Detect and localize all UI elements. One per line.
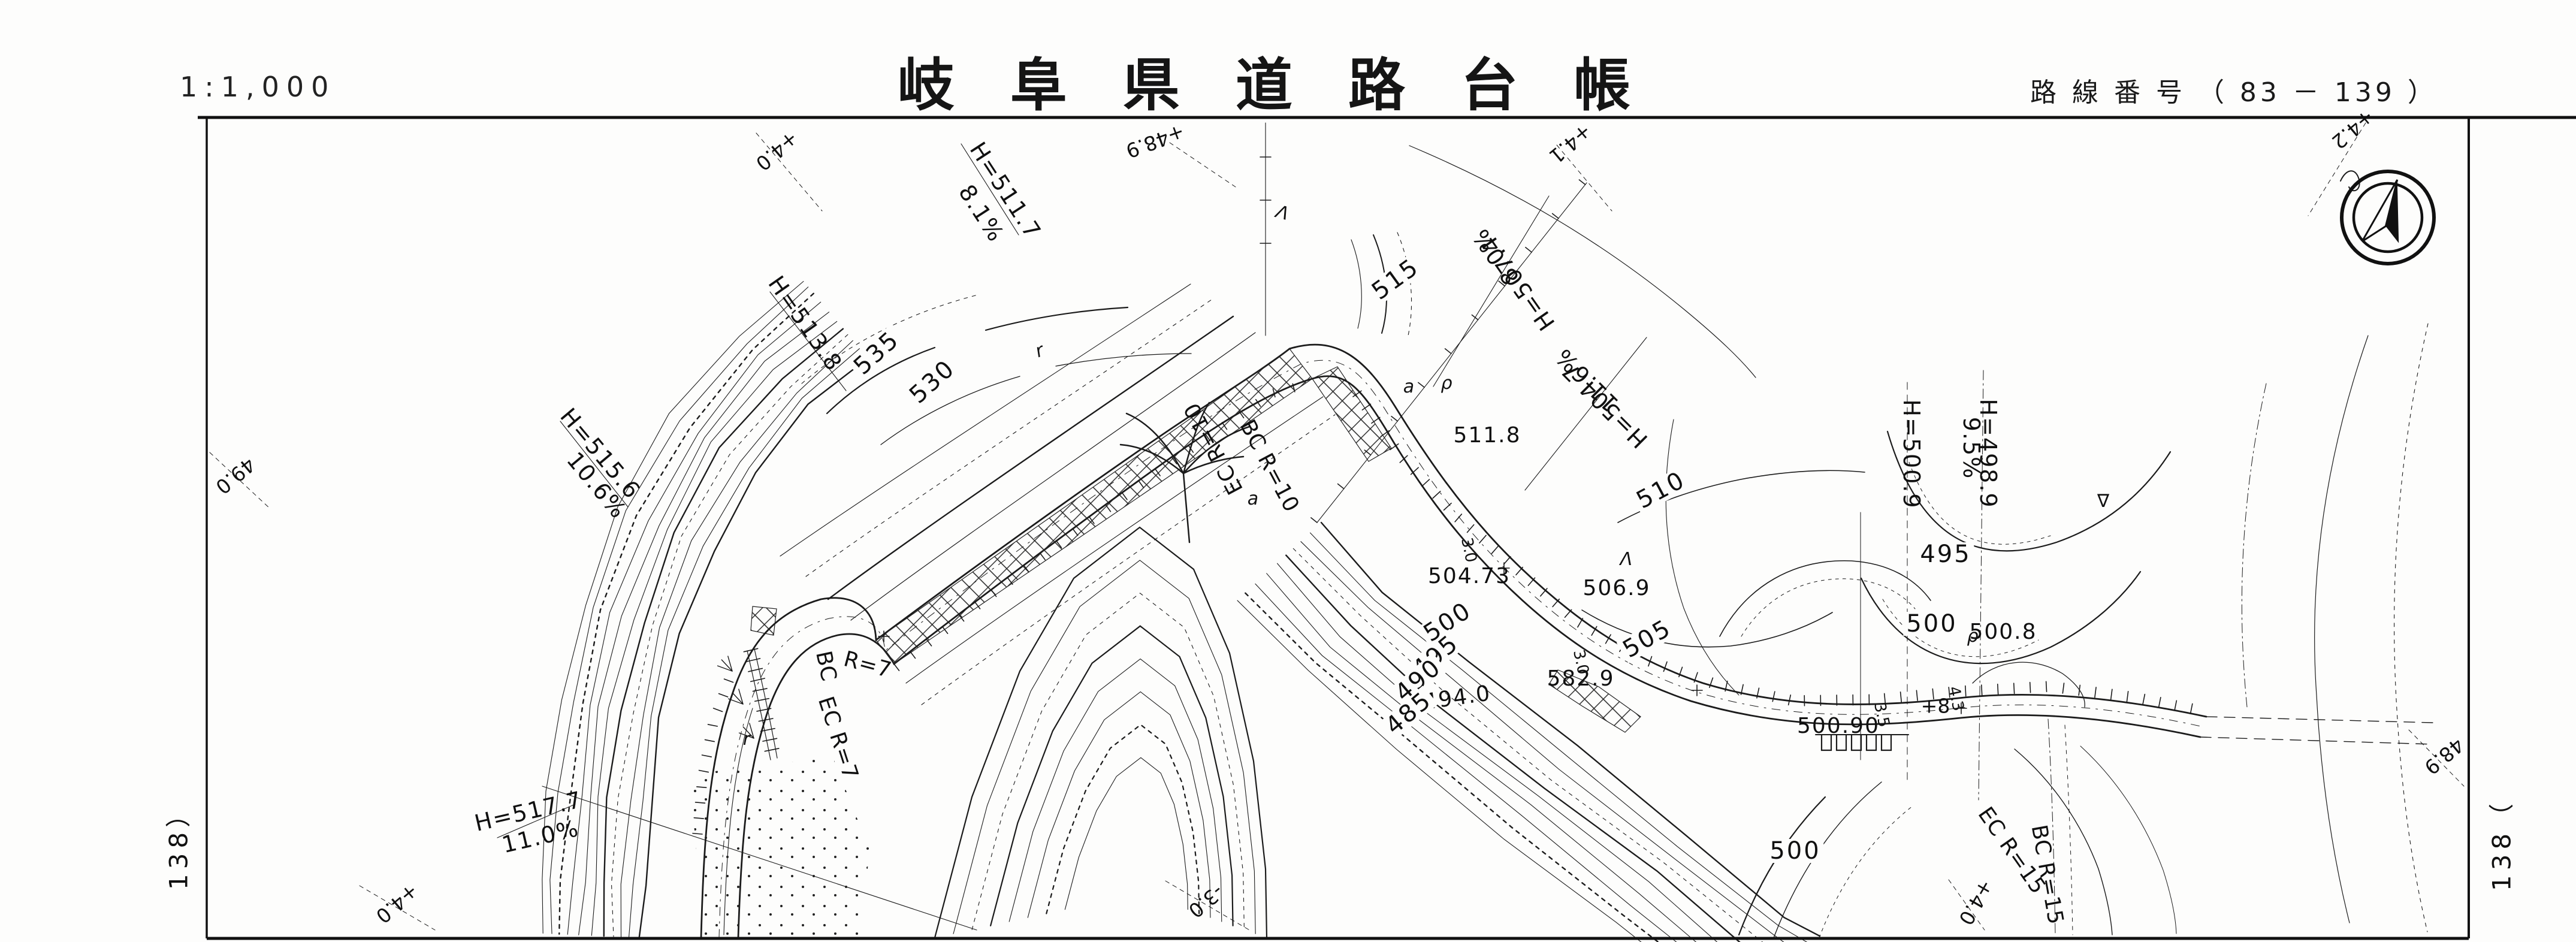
map-label-syma1: a (1248, 490, 1258, 508)
map-label-w30b: 3.0 (1458, 536, 1479, 564)
map-label-w43: 4.3 (1946, 685, 1966, 712)
map-label-symr2: r (743, 730, 750, 748)
map-label-bc7: BC (812, 649, 839, 684)
map-label-c500c: 500 (1903, 612, 1960, 636)
map-label-s5118: 511.8 (1453, 425, 1521, 446)
map-label-s50473: 504.73 (1428, 566, 1511, 587)
road-register-sheet: 1:1,000 岐 阜 県 道 路 台 帳 路 線 番 号 （ 83 － 139… (0, 0, 2576, 942)
north-arrow-icon (2342, 171, 2434, 264)
map-label-c500b: 500 (1766, 839, 1823, 863)
map-label-stp8: +8 (1921, 696, 1950, 716)
map-label-w30a: 3.0 (1571, 648, 1591, 676)
map-linework (0, 0, 2576, 942)
map-label-w35: 3.5 (1871, 701, 1892, 729)
map-label-s5008: 500.8 (1969, 621, 2037, 643)
map-label-h5009v: H=500.9 (1900, 399, 1923, 509)
map-label-symrho2: ρ (1967, 627, 1978, 645)
map-label-symrho1: ρ (1440, 375, 1452, 393)
map-label-c495b: 495 (1917, 542, 1974, 566)
map-label-h4989g: 9.5% (1960, 417, 1983, 480)
map-label-symv2: Λ (1620, 551, 1633, 569)
map-label-s5069: 506.9 (1583, 578, 1650, 599)
map-label-s50090: 500.90 (1797, 715, 1880, 737)
map-label-syma2: a (1403, 378, 1414, 396)
map-label-symv3: ∇ (2097, 493, 2109, 511)
